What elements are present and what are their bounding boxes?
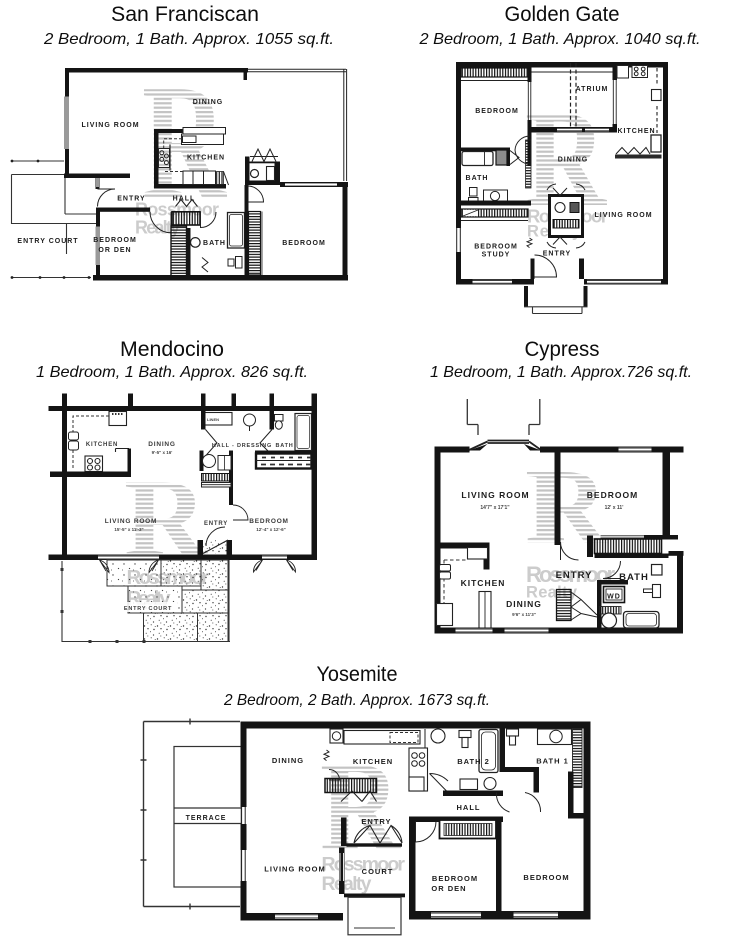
svg-text:BATH: BATH <box>275 443 293 449</box>
svg-text:BEDROOM: BEDROOM <box>93 237 137 244</box>
svg-text:KITCHEN: KITCHEN <box>86 442 118 448</box>
svg-text:Realty: Realty <box>322 873 372 895</box>
svg-text:BEDROOM: BEDROOM <box>432 874 478 883</box>
svg-text:LIVING ROOM: LIVING ROOM <box>461 490 529 500</box>
svg-text:BEDROOM: BEDROOM <box>282 240 326 247</box>
svg-text:LIVING ROOM: LIVING ROOM <box>81 122 139 129</box>
svg-text:9'6" x 11'3": 9'6" x 11'3" <box>512 612 536 617</box>
svg-text:ENTRY COURT: ENTRY COURT <box>124 606 172 612</box>
svg-text:2 Bedroom, 2 Bath. Approx. 167: 2 Bedroom, 2 Bath. Approx. 1673 sq.ft. <box>223 692 490 709</box>
svg-text:TERRACE: TERRACE <box>186 815 227 822</box>
svg-text:COURT: COURT <box>362 867 394 876</box>
svg-text:OR DEN: OR DEN <box>98 247 131 254</box>
svg-text:DINING: DINING <box>558 157 589 164</box>
svg-text:KITCHEN: KITCHEN <box>187 155 225 162</box>
svg-text:Mendocino: Mendocino <box>120 337 224 361</box>
svg-text:KITCHEN: KITCHEN <box>617 128 655 135</box>
svg-text:STUDY: STUDY <box>482 252 511 259</box>
svg-text:BEDROOM: BEDROOM <box>523 873 569 882</box>
svg-text:BEDROOM: BEDROOM <box>474 244 518 251</box>
svg-text:1 Bedroom, 1 Bath. Approx.726: 1 Bedroom, 1 Bath. Approx.726 sq.ft. <box>430 364 692 381</box>
svg-text:15'-5" x 11'-3": 15'-5" x 11'-3" <box>114 527 143 532</box>
svg-text:KITCHEN: KITCHEN <box>461 578 506 588</box>
svg-text:KITCHEN: KITCHEN <box>353 757 393 766</box>
svg-text:LIVING ROOM: LIVING ROOM <box>105 518 158 525</box>
svg-text:San Franciscan: San Franciscan <box>111 2 259 26</box>
svg-text:WD: WD <box>607 594 621 601</box>
svg-text:DINING: DINING <box>272 756 304 765</box>
svg-text:ENTRY: ENTRY <box>543 251 571 258</box>
svg-text:14'7" x 17'1": 14'7" x 17'1" <box>480 505 510 511</box>
svg-text:ENTRY: ENTRY <box>117 196 145 203</box>
svg-text:1 Bedroom, 1 Bath. Approx. 826: 1 Bedroom, 1 Bath. Approx. 826 sq.ft. <box>36 364 308 381</box>
svg-text:BATH: BATH <box>203 240 226 247</box>
svg-text:Cypress: Cypress <box>525 337 600 361</box>
svg-text:BATH: BATH <box>466 175 489 182</box>
svg-text:HALL: HALL <box>457 803 481 812</box>
svg-text:ENTRY: ENTRY <box>204 521 228 527</box>
svg-text:DINING: DINING <box>506 599 542 609</box>
svg-text:BEDROOM: BEDROOM <box>587 490 638 500</box>
svg-text:BEDROOM: BEDROOM <box>475 108 519 115</box>
svg-text:Golden Gate: Golden Gate <box>505 2 620 26</box>
svg-text:2 Bedroom, 1 Bath. Approx. 104: 2 Bedroom, 1 Bath. Approx. 1040 sq.ft. <box>418 31 700 48</box>
svg-text:ENTRY: ENTRY <box>556 570 593 581</box>
svg-text:BATH 1: BATH 1 <box>536 757 569 766</box>
svg-text:ENTRY: ENTRY <box>361 817 391 826</box>
svg-text:BEDROOM: BEDROOM <box>249 518 289 525</box>
svg-text:12'-4" x 12'-6": 12'-4" x 12'-6" <box>256 527 285 532</box>
svg-text:LIVING ROOM: LIVING ROOM <box>264 865 325 874</box>
svg-text:2 Bedroom, 1 Bath. Approx. 105: 2 Bedroom, 1 Bath. Approx. 1055 sq.ft. <box>43 31 334 48</box>
svg-text:LIVING ROOM: LIVING ROOM <box>594 212 652 219</box>
svg-text:DINING: DINING <box>193 99 224 106</box>
svg-text:12' x 11': 12' x 11' <box>605 505 624 511</box>
svg-text:9'-5" x 16': 9'-5" x 16' <box>152 450 173 455</box>
svg-text:BATH 2: BATH 2 <box>457 757 490 766</box>
svg-text:LINEN: LINEN <box>207 417 219 422</box>
svg-text:ENTRY COURT: ENTRY COURT <box>17 238 78 245</box>
svg-text:DINING: DINING <box>148 441 176 448</box>
svg-text:OR DEN: OR DEN <box>431 884 466 893</box>
svg-text:Yosemite: Yosemite <box>317 662 398 686</box>
svg-text:ATRIUM: ATRIUM <box>576 86 609 93</box>
